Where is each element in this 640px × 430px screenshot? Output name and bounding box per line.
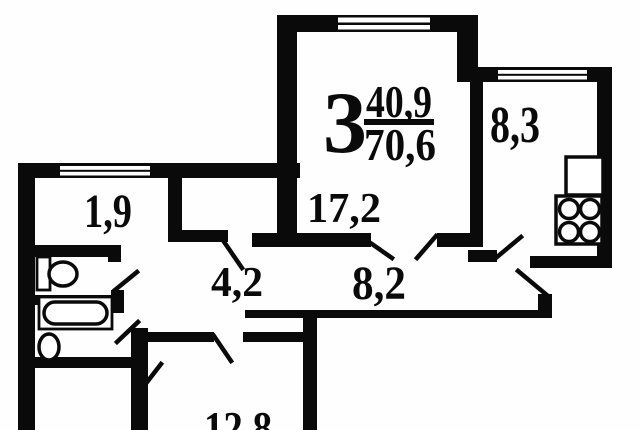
wall-kitchen-left <box>470 82 483 247</box>
kitchen-area-label: 8,3 <box>490 97 540 154</box>
living-room-area-label: 17,2 <box>307 186 381 232</box>
door-living-left-leaf <box>369 242 392 258</box>
stove-burner <box>581 200 600 219</box>
toilet-bowl <box>49 262 77 286</box>
apartment-rooms-count: 3 <box>323 75 367 172</box>
door-living-right-leaf <box>417 236 436 258</box>
wall-kitchen-bottom <box>530 256 612 268</box>
bathtub <box>44 302 107 324</box>
window-living-mullion <box>338 23 430 26</box>
stove-burner <box>560 200 579 219</box>
hallway-area-label: 8,2 <box>352 257 406 310</box>
window-kitchen-mullion <box>498 74 587 76</box>
kitchen-sink <box>566 157 603 195</box>
wall-wc-jamb <box>108 245 121 262</box>
wall-living-bottom-right <box>437 233 473 247</box>
floor-plan: 3 40,9 70,6 17,2 8,3 1,9 4,2 8,2 12,8 <box>0 0 640 430</box>
door-wc-leaf <box>115 272 137 290</box>
wall-bedroom-left <box>131 328 148 430</box>
wash-basin <box>39 334 59 360</box>
door-bedroom-leaf <box>214 336 231 361</box>
wall-kitchen-door-jamb <box>468 250 497 262</box>
door-kitchen-leaf <box>497 237 521 257</box>
corridor-area-label: 4,2 <box>211 260 263 306</box>
floor-plan-drawing: 3 40,9 70,6 17,2 8,3 1,9 4,2 8,2 12,8 <box>0 0 640 430</box>
stove-burner <box>581 223 600 242</box>
wall-hallway-bottom <box>245 310 552 318</box>
stove-burner <box>560 223 579 242</box>
wall-bedroom-top-left <box>148 332 214 342</box>
balcony-area-label: 1,9 <box>84 185 132 238</box>
wall-bedroom-top-right <box>243 332 305 342</box>
wall-living-bottom-left <box>252 233 371 247</box>
window-balcony-mullion <box>60 170 150 172</box>
wall-outer-left <box>18 163 35 430</box>
wall-wc-top <box>35 245 120 257</box>
wall-bedroom-right <box>303 318 317 430</box>
wall-living-left <box>277 15 297 247</box>
apartment-total-area: 70,6 <box>364 119 436 170</box>
bedroom-area-label: 12,8 <box>204 402 272 430</box>
door-entry-leaf <box>518 271 548 296</box>
